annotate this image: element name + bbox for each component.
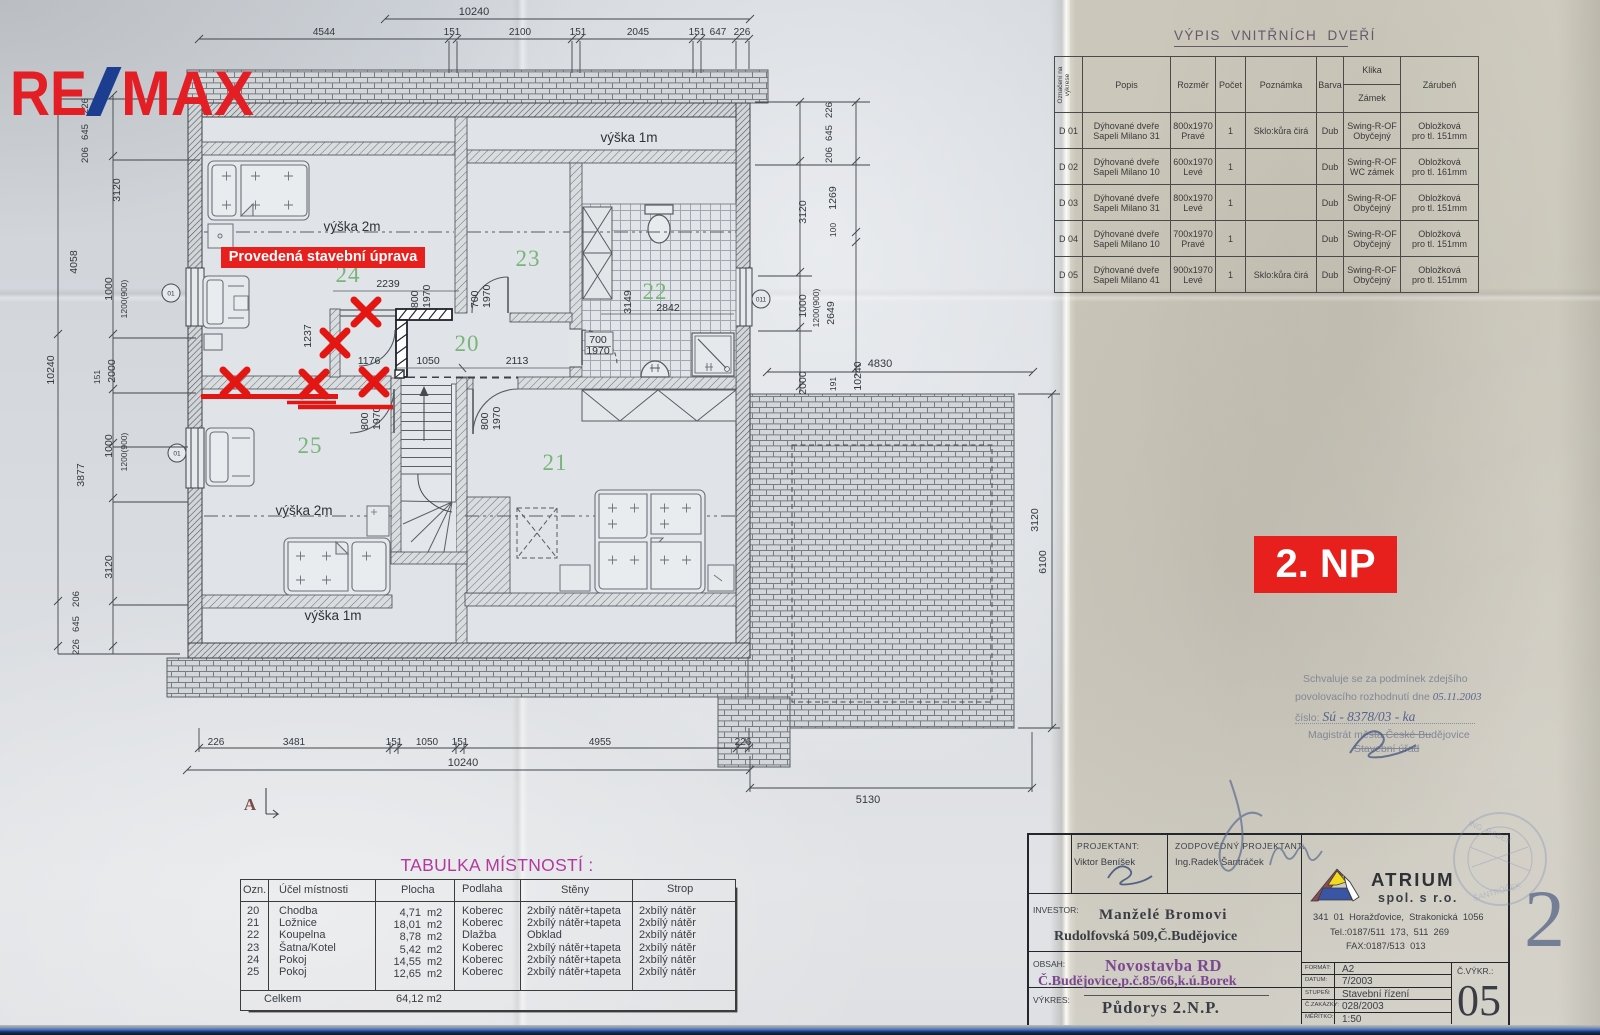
svg-text:011: 011 — [756, 297, 767, 304]
svg-text:1269: 1269 — [827, 186, 839, 210]
svg-text:2045: 2045 — [627, 27, 650, 38]
svg-text:ING. RADEK: ING. RADEK — [1467, 819, 1514, 846]
svg-text:100: 100 — [828, 223, 838, 237]
svg-text:01: 01 — [167, 291, 175, 298]
svg-text:A: A — [244, 795, 257, 814]
svg-text:1970: 1970 — [421, 284, 433, 308]
svg-text:MAX: MAX — [121, 59, 254, 129]
svg-text:800: 800 — [479, 412, 491, 430]
svg-text:3481: 3481 — [283, 737, 306, 748]
svg-text:výška 1m: výška 1m — [600, 130, 657, 145]
svg-text:226: 226 — [734, 27, 751, 38]
svg-text:01: 01 — [173, 451, 181, 458]
svg-text:226: 226 — [71, 639, 82, 655]
svg-text:191: 191 — [828, 377, 838, 391]
svg-text:6100: 6100 — [1037, 550, 1049, 574]
svg-text:3120: 3120 — [103, 555, 115, 579]
svg-text:1000: 1000 — [103, 434, 115, 458]
svg-text:20: 20 — [455, 331, 480, 356]
svg-text:10240: 10240 — [459, 6, 490, 18]
svg-text:647: 647 — [710, 27, 727, 38]
svg-text:2000: 2000 — [797, 371, 809, 395]
svg-text:1200(900): 1200(900) — [811, 288, 821, 327]
svg-text:výška 2m: výška 2m — [275, 503, 332, 518]
svg-text:206: 206 — [71, 591, 82, 607]
svg-text:10240: 10240 — [448, 757, 479, 769]
svg-text:4058: 4058 — [68, 250, 80, 274]
svg-text:226: 226 — [824, 102, 835, 118]
svg-text:1176: 1176 — [358, 355, 381, 367]
svg-text:3149: 3149 — [622, 290, 634, 314]
svg-text:700: 700 — [469, 290, 481, 308]
svg-text:2842: 2842 — [656, 302, 680, 314]
svg-text:22: 22 — [643, 279, 668, 304]
svg-text:800: 800 — [409, 290, 421, 308]
svg-text:1050: 1050 — [416, 355, 440, 367]
svg-text:2100: 2100 — [509, 27, 532, 38]
svg-text:RE: RE — [10, 59, 87, 129]
svg-text:4955: 4955 — [589, 737, 612, 748]
svg-text:1237: 1237 — [302, 324, 314, 348]
svg-text:4544: 4544 — [313, 27, 336, 38]
svg-text:23: 23 — [516, 246, 541, 271]
svg-text:10240: 10240 — [45, 355, 57, 384]
svg-text:151: 151 — [689, 27, 706, 38]
svg-text:2113: 2113 — [506, 355, 529, 367]
svg-text:výška 2m: výška 2m — [323, 219, 380, 234]
svg-text:3877: 3877 — [75, 463, 87, 487]
svg-text:1200(900): 1200(900) — [119, 279, 129, 318]
svg-text:800: 800 — [359, 412, 371, 430]
svg-text:151: 151 — [92, 370, 102, 384]
svg-text:151: 151 — [452, 737, 469, 748]
svg-text:10240: 10240 — [852, 361, 864, 390]
svg-text:151: 151 — [386, 737, 403, 748]
svg-text:25: 25 — [298, 433, 323, 458]
svg-text:206: 206 — [824, 147, 835, 163]
svg-text:3120: 3120 — [1029, 508, 1041, 532]
svg-text:21: 21 — [543, 450, 568, 475]
svg-text:1970: 1970 — [491, 406, 503, 430]
svg-text:226: 226 — [735, 737, 752, 748]
svg-text:645: 645 — [824, 125, 835, 141]
svg-text:1970: 1970 — [371, 406, 383, 430]
svg-text:3120: 3120 — [797, 200, 809, 224]
svg-text:226: 226 — [208, 737, 225, 748]
svg-text:5130: 5130 — [856, 794, 880, 806]
svg-text:2000: 2000 — [106, 359, 118, 383]
svg-text:1200(900): 1200(900) — [119, 432, 129, 471]
svg-text:1050: 1050 — [416, 737, 439, 748]
svg-text:3120: 3120 — [111, 178, 123, 202]
svg-text:151: 151 — [570, 27, 587, 38]
svg-text:2239: 2239 — [376, 278, 400, 290]
svg-text:645: 645 — [71, 616, 82, 632]
svg-text:1000: 1000 — [103, 277, 115, 301]
svg-text:151: 151 — [444, 27, 461, 38]
svg-text:4830: 4830 — [868, 358, 892, 370]
svg-text:2649: 2649 — [825, 301, 837, 325]
svg-text:206: 206 — [80, 147, 91, 163]
svg-text:výška 1m: výška 1m — [304, 608, 361, 623]
svg-text:1000: 1000 — [797, 294, 809, 318]
svg-text:1970: 1970 — [481, 284, 493, 308]
